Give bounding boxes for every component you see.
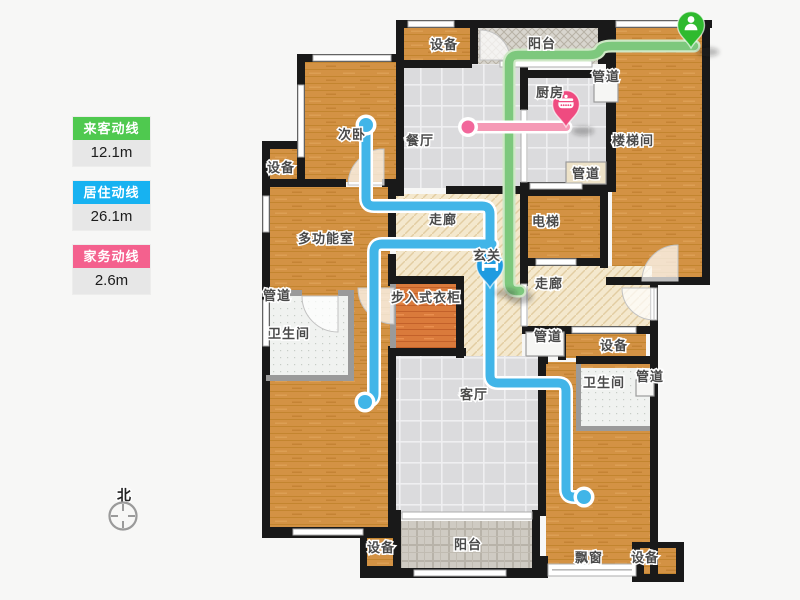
label-pipe-top: 管道 [592, 69, 620, 84]
label-bathroom-right: 卫生间 [583, 375, 625, 390]
label-equipment-bottom-left: 设备 [367, 540, 395, 555]
compass-label: 北 [117, 487, 131, 503]
label-equipment-top: 设备 [430, 37, 458, 52]
label-multi-function: 多功能室 [298, 231, 354, 246]
label-corridor-upper: 走廊 [429, 212, 457, 227]
legend-housework-route[interactable]: 家务动线 2.6m [73, 245, 150, 294]
room-stairwell [612, 28, 704, 279]
pin-shadow [697, 48, 719, 57]
label-pipe-kitchen: 管道 [572, 166, 600, 181]
legend-visitor-value: 12.1m [73, 140, 150, 166]
legend-housework-value: 2.6m [73, 268, 150, 294]
label-bathroom-left: 卫生间 [268, 326, 310, 341]
compass: 北 [110, 487, 137, 530]
label-foyer: 玄关 [473, 248, 501, 263]
legend-visitor-label: 来客动线 [73, 117, 150, 140]
label-pipe-middle: 管道 [534, 329, 562, 344]
label-pipe-right: 管道 [636, 369, 664, 384]
label-pipe-bath-left: 管道 [263, 288, 291, 303]
label-corridor-right: 走廊 [535, 276, 563, 291]
label-equipment-middle: 设备 [600, 338, 628, 353]
label-equipment-bottom-right: 设备 [631, 550, 659, 565]
label-second-bedroom: 次卧 [338, 127, 366, 142]
legend-visitor-route[interactable]: 来客动线 12.1m [73, 117, 150, 166]
label-stairwell: 楼梯间 [612, 133, 654, 148]
pin-shadow [572, 127, 594, 136]
label-bay-window: 飘窗 [575, 550, 603, 565]
pin-shadow [495, 289, 517, 298]
label-balcony-bottom: 阳台 [454, 537, 482, 552]
compass-ticks [111, 504, 135, 528]
legend-resident-route[interactable]: 居住动线 26.1m [73, 181, 150, 230]
label-equipment-left: 设备 [267, 160, 295, 175]
label-walkin-closet: 步入式衣柜 [391, 290, 461, 305]
label-living: 客厅 [460, 387, 488, 402]
label-kitchen: 厨房 [536, 85, 564, 100]
floorplan-viewer: 设备 阳台 管道 厨房 楼梯间 次卧 餐厅 设备 多功能室 走廊 电梯 玄关 走… [0, 0, 800, 600]
label-balcony-top: 阳台 [528, 36, 556, 51]
legend-housework-label: 家务动线 [73, 245, 150, 268]
legend-resident-label: 居住动线 [73, 181, 150, 204]
label-elevator: 电梯 [532, 214, 560, 229]
label-dining: 餐厅 [405, 133, 434, 148]
route-legend: 来客动线 12.1m 居住动线 26.1m 家务动线 2.6m [73, 117, 150, 309]
legend-resident-value: 26.1m [73, 204, 150, 230]
